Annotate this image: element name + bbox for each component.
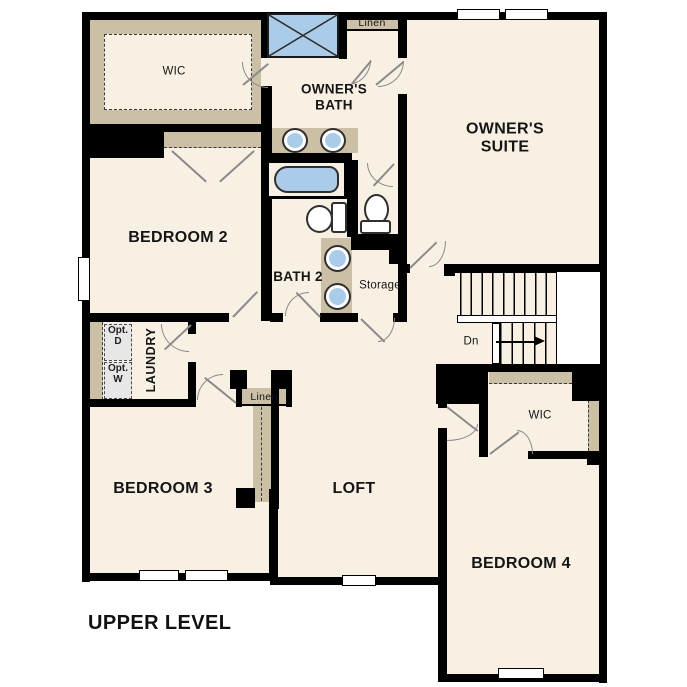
stair-landing	[556, 272, 600, 364]
bedroom2-closet-shelf	[164, 132, 261, 148]
sink-icon	[324, 283, 351, 310]
toilet-icon	[331, 202, 347, 233]
window	[505, 9, 548, 20]
wall	[599, 12, 607, 683]
page-title: UPPER LEVEL	[88, 612, 231, 635]
wall	[286, 387, 292, 407]
toilet-icon	[306, 205, 333, 233]
room-label-linen-upper: Linen	[358, 17, 385, 29]
room-label-bedroom3: BEDROOM 3	[113, 480, 213, 498]
stairs-upper-flight	[460, 272, 557, 315]
wall	[438, 428, 447, 682]
floor-plan: Opt. D Opt. W	[0, 0, 687, 687]
wall	[389, 234, 403, 264]
room-label-wic-upper-left: WIC	[163, 65, 186, 78]
stair-stringer	[492, 323, 500, 364]
wic-bedroom4-shelf	[489, 371, 572, 384]
wall	[339, 12, 347, 59]
window	[457, 9, 500, 20]
toilet-icon	[360, 220, 391, 234]
wall	[236, 387, 242, 407]
linen-chase	[253, 406, 271, 502]
room-label-loft: LOFT	[333, 480, 376, 498]
wall	[479, 365, 488, 457]
window	[78, 257, 90, 301]
sink-icon	[282, 128, 308, 153]
window	[498, 668, 544, 679]
room-label-owners-bath: OWNER'S BATH	[301, 81, 367, 112]
wall	[320, 313, 358, 322]
wall	[444, 264, 455, 276]
stair-direction-arrow-icon	[534, 336, 545, 346]
shower-icon	[267, 13, 339, 58]
room-label-bedroom4: BEDROOM 4	[471, 555, 571, 573]
room-label-owners-suite: OWNER'S SUITE	[466, 121, 544, 158]
wall	[402, 264, 410, 273]
wall	[188, 362, 196, 407]
wall	[82, 573, 278, 581]
sink-icon	[324, 245, 351, 272]
wall	[82, 124, 164, 158]
window	[185, 570, 228, 581]
wall	[236, 488, 255, 508]
wall	[572, 364, 607, 401]
linen-chase-line	[261, 407, 262, 501]
stairs-dn-label: Dn	[463, 335, 478, 348]
room-label-storage: Storage	[359, 279, 401, 292]
optional-washer-box: Opt. W	[104, 362, 132, 399]
wall	[261, 86, 272, 321]
wall	[587, 451, 607, 465]
room-label-bath2: BATH 2	[273, 269, 323, 285]
room-label-linen-hall: Linen	[250, 391, 277, 403]
bathtub-icon	[266, 160, 347, 199]
stair-direction-line	[496, 341, 536, 343]
wall	[82, 313, 229, 322]
floor-area	[440, 366, 603, 678]
wall	[347, 160, 358, 237]
window	[342, 575, 376, 586]
room-label-wic-bedroom4: WIC	[529, 409, 552, 422]
stair-rail-band	[457, 315, 557, 323]
wall	[398, 12, 407, 58]
wall	[82, 399, 188, 407]
sink-icon	[320, 128, 346, 153]
window	[139, 570, 179, 581]
wall	[269, 489, 278, 581]
optional-dryer-box: Opt. D	[104, 324, 132, 361]
wall	[270, 313, 283, 322]
wall	[486, 364, 574, 372]
laundry-counter	[88, 322, 103, 400]
room-label-laundry: LAUNDRY	[144, 328, 158, 393]
room-label-bedroom2: BEDROOM 2	[128, 229, 228, 247]
stairs-lower-flight	[500, 323, 557, 364]
